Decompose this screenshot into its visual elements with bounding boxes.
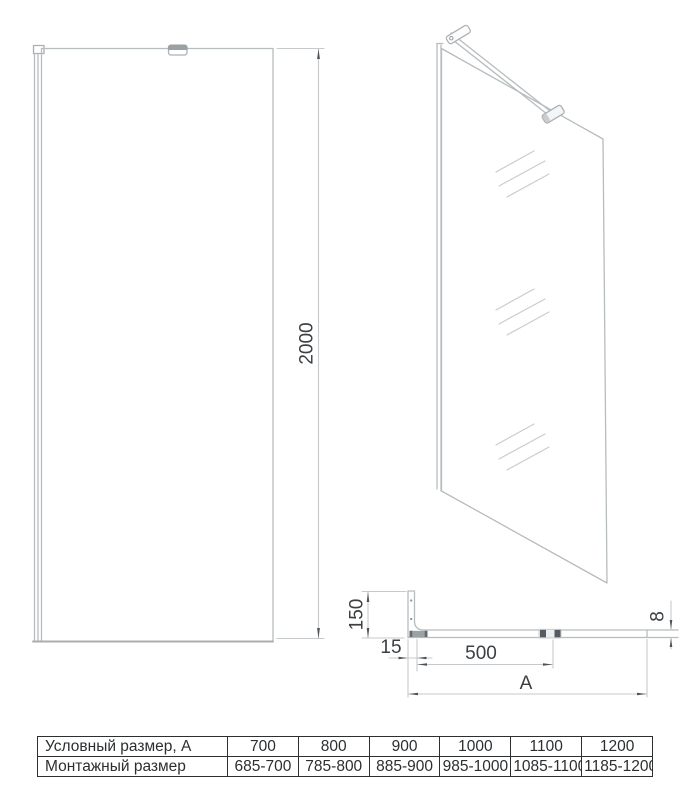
wall-holder-plan	[410, 631, 428, 637]
shower-screen-drawing: 2000	[0, 0, 691, 725]
mounting-size-cell: 985-1000	[440, 757, 511, 777]
dimension-bar-length: 500	[417, 640, 553, 668]
table-row-mounting-size: Монтажный размер 685-700 785-800 885-900…	[38, 757, 653, 777]
dimension-width-a: A	[408, 640, 647, 698]
mounting-size-cell: 1185-1200	[582, 757, 653, 777]
support-bar-clamp-plan	[539, 629, 561, 638]
mounting-size-cell: 885-900	[369, 757, 440, 777]
dimension-depth: 150	[347, 592, 406, 639]
glass-panel-front	[33, 49, 273, 642]
profile-width-dim-label: 15	[380, 637, 401, 658]
technical-drawing-page: 2000	[0, 0, 691, 800]
nominal-size-cell: 1200	[582, 737, 653, 757]
dimension-profile-width: 15	[380, 637, 432, 671]
size-table: Условный размер, А 700 800 900 1000 1100…	[37, 736, 653, 777]
nominal-size-cell: 1000	[440, 737, 511, 757]
nominal-size-cell: 800	[298, 737, 369, 757]
nominal-size-row-label: Условный размер, А	[38, 737, 228, 757]
mounting-size-cell: 785-800	[298, 757, 369, 777]
width-a-dim-label: A	[520, 673, 533, 694]
perspective-view	[437, 24, 607, 583]
dimension-glass-thickness: 8	[648, 601, 673, 649]
support-bar-wall-bracket	[445, 24, 471, 44]
mounting-size-row-label: Монтажный размер	[38, 757, 228, 777]
bar-length-dim-label: 500	[465, 643, 497, 664]
nominal-size-cell: 900	[369, 737, 440, 757]
support-bar-clamp-front	[168, 45, 188, 55]
wall-profile-front	[34, 46, 45, 642]
mounting-size-cell: 1085-1100	[511, 757, 582, 777]
dimension-height: 2000	[277, 49, 324, 639]
glass-panel-3d	[442, 49, 608, 584]
depth-dim-label: 150	[347, 599, 368, 631]
height-dim-label: 2000	[297, 322, 318, 364]
wall-profile-plan	[408, 591, 424, 638]
plan-view: 150 15 500	[347, 591, 678, 697]
table-row-nominal-size: Условный размер, А 700 800 900 1000 1100…	[38, 737, 653, 757]
nominal-size-cell: 700	[228, 737, 299, 757]
nominal-size-cell: 1100	[511, 737, 582, 757]
front-view: 2000	[33, 45, 324, 642]
mounting-size-cell: 685-700	[228, 757, 299, 777]
glass-thickness-dim-label: 8	[648, 611, 669, 622]
